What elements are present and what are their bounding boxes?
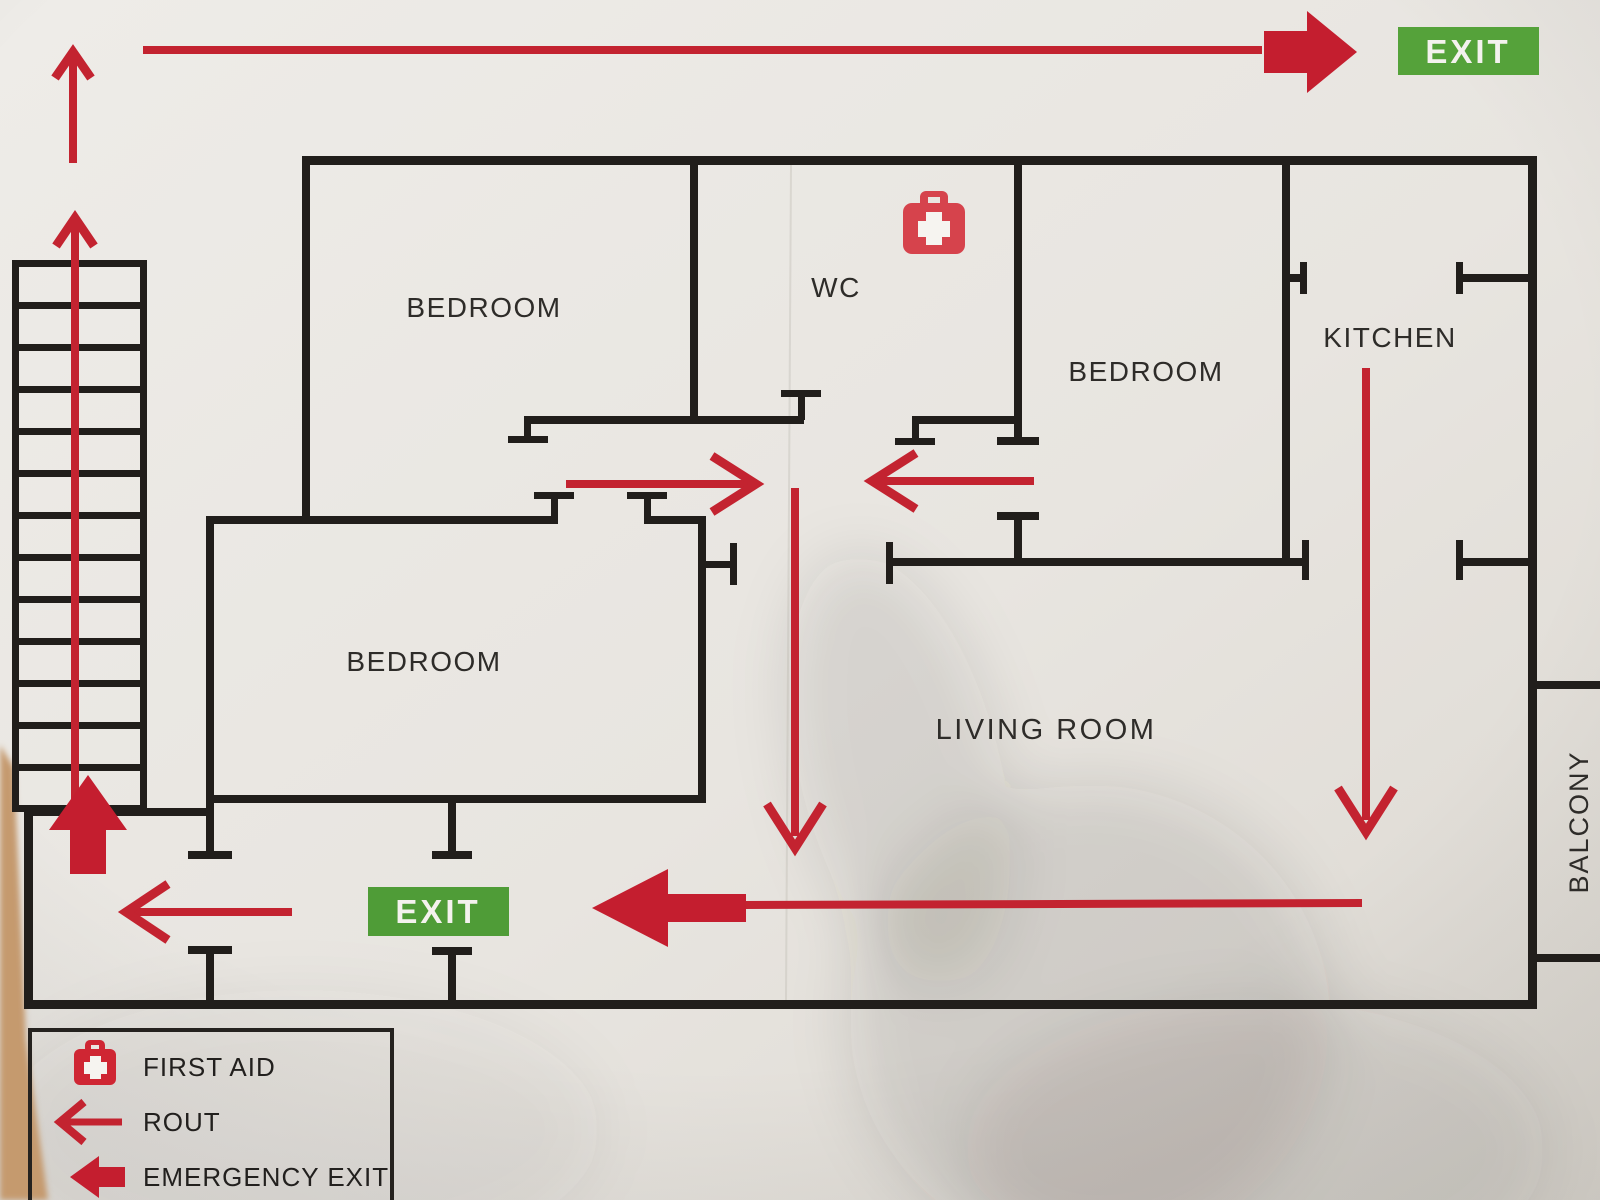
- stair-step: [12, 722, 147, 729]
- wall: [206, 516, 214, 857]
- room-label-living-room: LIVING ROOM: [936, 714, 1157, 746]
- stair-step: [12, 260, 147, 267]
- balcony-wall: [1537, 954, 1600, 962]
- legend-first-aid-label: FIRST AID: [143, 1052, 276, 1082]
- legend-emergency-exit-label: EMERGENCY EXIT: [143, 1162, 389, 1192]
- legend-route-label: ROUT: [143, 1107, 221, 1137]
- door-jamb: [644, 498, 651, 520]
- door-jamb: [1300, 262, 1307, 294]
- stair-step: [12, 386, 147, 393]
- stair-rail: [140, 260, 147, 812]
- exit-sign-top: EXIT: [1398, 27, 1539, 75]
- wall: [1528, 156, 1537, 1009]
- door-jamb: [997, 437, 1039, 445]
- door-jamb: [997, 512, 1039, 520]
- door-jamb: [798, 394, 805, 420]
- door-jamb: [432, 947, 472, 955]
- wall: [1462, 558, 1532, 566]
- wall: [890, 558, 1308, 566]
- wall: [302, 156, 310, 524]
- door-jamb: [508, 436, 548, 443]
- wall: [206, 952, 214, 1009]
- door-jamb: [886, 542, 893, 584]
- door-jamb: [895, 438, 935, 445]
- stair-step: [12, 638, 147, 645]
- wall: [24, 808, 214, 816]
- exit-sign-top-label: EXIT: [1425, 33, 1510, 70]
- stair-step: [12, 344, 147, 351]
- door-jamb: [627, 492, 667, 499]
- stair-rail: [12, 260, 19, 812]
- stair-step: [12, 680, 147, 687]
- wall: [690, 156, 698, 424]
- route-line-hallway: [744, 903, 1362, 905]
- stair-step: [12, 428, 147, 435]
- wall: [302, 156, 1537, 165]
- door-jamb: [188, 946, 232, 954]
- evacuation-plan: EXIT EXIT BEDROOM WC BEDROOM KITCHEN BED…: [0, 0, 1600, 1200]
- stair-step: [12, 596, 147, 603]
- balcony-wall: [1537, 681, 1600, 689]
- room-label-balcony: BALCONY: [1564, 750, 1594, 893]
- wall: [1462, 274, 1532, 282]
- stair-step: [12, 764, 147, 771]
- stair-step: [12, 302, 147, 309]
- door-jamb: [1456, 540, 1463, 580]
- wall: [206, 516, 558, 524]
- wall: [527, 416, 804, 424]
- door-jamb: [781, 390, 821, 397]
- wall: [698, 516, 706, 803]
- wall: [1282, 156, 1290, 566]
- stair-step: [12, 470, 147, 477]
- evacuation-plan-canvas: EXIT EXIT BEDROOM WC BEDROOM KITCHEN BED…: [0, 0, 1600, 1200]
- room-label-bedroom-top-left: BEDROOM: [406, 292, 561, 323]
- room-label-bedroom-bottom-left: BEDROOM: [346, 646, 501, 677]
- exit-sign-bottom-label: EXIT: [395, 893, 480, 930]
- door-jamb: [730, 543, 737, 585]
- stair-step: [12, 554, 147, 561]
- door-jamb: [551, 498, 558, 520]
- room-label-bedroom-top-right: BEDROOM: [1068, 356, 1223, 387]
- door-jamb: [1302, 540, 1309, 580]
- stair-step: [12, 512, 147, 519]
- door-jamb: [448, 954, 456, 1002]
- door-jamb: [1456, 262, 1463, 294]
- door-jamb: [448, 800, 456, 853]
- room-label-wc: WC: [811, 272, 861, 303]
- wall: [912, 416, 1022, 424]
- door-jamb: [188, 851, 232, 859]
- door-jamb: [534, 492, 574, 499]
- exit-sign-bottom: EXIT: [368, 887, 509, 936]
- wall: [1014, 156, 1022, 444]
- wall: [644, 516, 706, 524]
- door-jamb: [432, 851, 472, 859]
- wall: [24, 1000, 1537, 1009]
- room-label-kitchen: KITCHEN: [1323, 322, 1456, 353]
- wall: [24, 808, 33, 1009]
